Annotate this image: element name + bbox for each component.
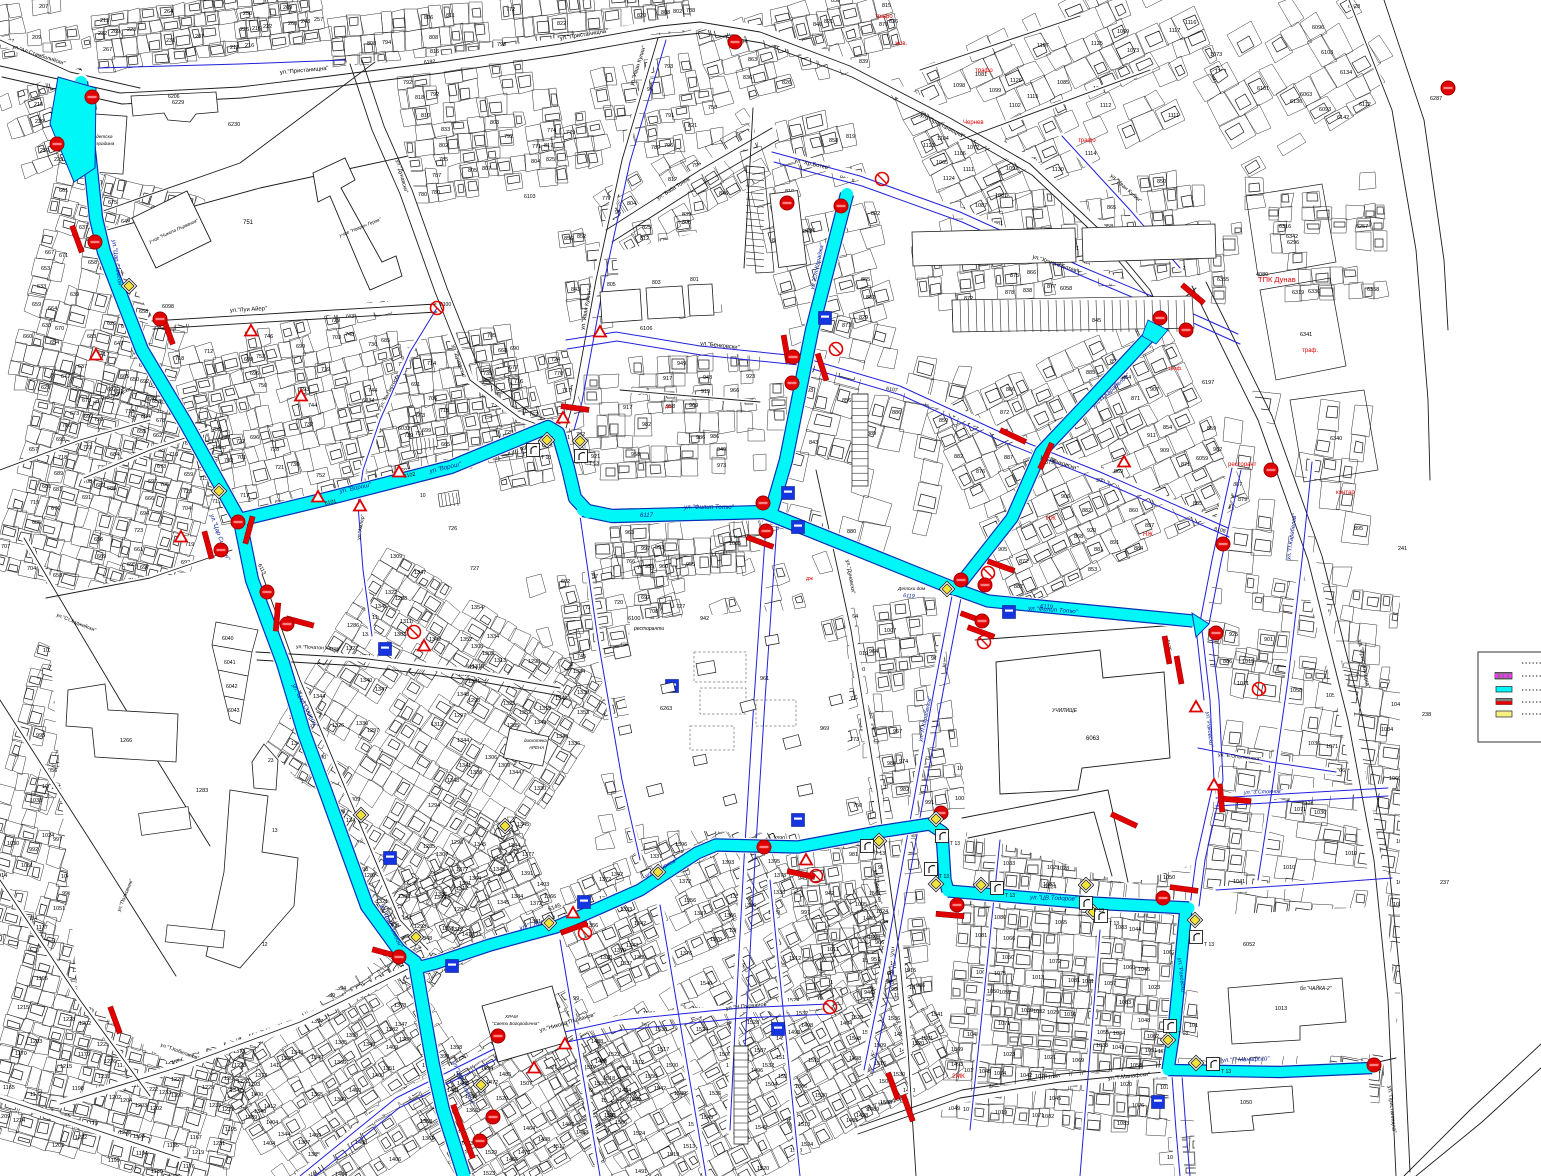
svg-text:1512: 1512	[632, 1060, 644, 1066]
svg-text:992: 992	[29, 847, 38, 853]
svg-text:774: 774	[547, 128, 556, 134]
svg-text:838: 838	[1023, 288, 1032, 294]
svg-text:796: 796	[806, 228, 815, 234]
svg-text:1165: 1165	[3, 1085, 15, 1091]
svg-text:825: 825	[546, 157, 555, 163]
svg-text:1007: 1007	[884, 628, 896, 634]
svg-text:1506: 1506	[795, 1084, 807, 1090]
svg-text:685: 685	[32, 520, 41, 526]
svg-text:901: 901	[1264, 637, 1273, 643]
svg-text:982: 982	[642, 422, 651, 428]
svg-text:1011: 1011	[827, 947, 839, 953]
svg-text:723: 723	[134, 528, 143, 534]
svg-text:1104: 1104	[937, 136, 949, 142]
svg-text:1071: 1071	[998, 1021, 1010, 1027]
svg-text:766: 766	[626, 559, 635, 565]
svg-text:1039: 1039	[1021, 1008, 1033, 1014]
svg-text:1393: 1393	[722, 860, 734, 866]
svg-text:940: 940	[717, 447, 726, 453]
svg-text:887: 887	[1014, 584, 1023, 590]
svg-text:6342: 6342	[1286, 234, 1298, 240]
svg-text:1050: 1050	[987, 989, 999, 995]
svg-text:1370: 1370	[614, 948, 626, 954]
svg-text:1005: 1005	[855, 902, 867, 908]
svg-text:градина: градина	[96, 141, 115, 147]
svg-text:222: 222	[263, 24, 272, 30]
svg-text:1016: 1016	[1064, 1012, 1076, 1018]
svg-text:детска: детска	[96, 134, 113, 140]
svg-text:885: 885	[1086, 370, 1095, 376]
svg-text:1395: 1395	[768, 859, 780, 865]
svg-text:853: 853	[1088, 567, 1097, 573]
svg-text:1041: 1041	[1233, 879, 1245, 885]
svg-text:6296: 6296	[1287, 240, 1299, 246]
svg-text:637: 637	[79, 225, 88, 231]
svg-text:872: 872	[1000, 410, 1009, 416]
svg-text:1083: 1083	[1117, 1121, 1129, 1127]
svg-text:673: 673	[157, 464, 166, 470]
svg-text:895: 895	[1354, 526, 1363, 532]
svg-text:трафо: трафо	[875, 14, 893, 20]
svg-text:6124: 6124	[1044, 884, 1057, 890]
svg-text:6042: 6042	[226, 684, 238, 690]
svg-text:969: 969	[820, 726, 829, 732]
svg-text:6341: 6341	[1300, 332, 1312, 338]
svg-text:726: 726	[448, 526, 457, 532]
svg-text:942: 942	[825, 891, 834, 897]
svg-text:1347: 1347	[395, 1022, 407, 1028]
svg-text:1114: 1114	[1085, 151, 1096, 157]
svg-text:1518: 1518	[603, 1076, 615, 1082]
svg-text:681: 681	[42, 484, 51, 490]
svg-text:1409: 1409	[309, 1133, 321, 1139]
svg-text:715: 715	[212, 445, 221, 451]
svg-text:Т 13: Т 13	[1094, 908, 1104, 914]
svg-text:1198: 1198	[72, 1086, 84, 1092]
svg-text:816: 816	[430, 49, 439, 55]
svg-text:1493: 1493	[951, 1062, 963, 1068]
svg-text:1498: 1498	[801, 1023, 813, 1029]
svg-text:1344: 1344	[509, 770, 521, 776]
svg-text:690: 690	[510, 346, 519, 352]
svg-text:1045: 1045	[1138, 967, 1150, 973]
svg-text:919: 919	[701, 389, 710, 395]
svg-text:1404: 1404	[266, 1120, 278, 1126]
svg-text:846: 846	[719, 191, 728, 197]
svg-text:811: 811	[446, 13, 455, 19]
svg-text:6142: 6142	[1337, 115, 1349, 121]
svg-text:216: 216	[245, 43, 254, 49]
svg-text:667: 667	[45, 250, 54, 256]
svg-text:633: 633	[37, 284, 46, 290]
svg-text:744: 744	[368, 388, 377, 394]
svg-text:684: 684	[110, 452, 119, 458]
svg-text:1549: 1549	[755, 1125, 767, 1131]
svg-text:1336: 1336	[568, 741, 580, 747]
svg-text:1372: 1372	[599, 877, 611, 883]
svg-text:1484: 1484	[619, 1088, 631, 1094]
svg-text:860: 860	[1129, 508, 1138, 514]
svg-text:1516: 1516	[874, 1061, 886, 1067]
svg-text:1071: 1071	[1326, 744, 1338, 750]
svg-text:882: 882	[866, 295, 875, 301]
svg-text:639: 639	[70, 292, 79, 298]
svg-text:216: 216	[252, 26, 261, 32]
svg-text:718: 718	[175, 356, 184, 362]
svg-text:1498: 1498	[856, 1113, 868, 1119]
svg-text:1334: 1334	[573, 669, 585, 675]
svg-text:1176: 1176	[183, 1164, 195, 1170]
svg-text:626: 626	[107, 321, 116, 327]
svg-text:6316: 6316	[1279, 224, 1291, 230]
svg-text:1412: 1412	[264, 1104, 276, 1110]
svg-text:1283: 1283	[196, 788, 208, 794]
svg-text:1522: 1522	[608, 1052, 620, 1058]
svg-text:997: 997	[53, 837, 62, 843]
svg-text:1490: 1490	[863, 916, 875, 922]
svg-text:1298: 1298	[528, 659, 540, 665]
svg-text:1483: 1483	[576, 1130, 588, 1136]
svg-text:Т 13: Т 13	[589, 461, 599, 467]
svg-text:751: 751	[243, 220, 254, 226]
svg-text:752: 752	[256, 354, 265, 360]
svg-text:803: 803	[490, 120, 499, 126]
svg-text:1498: 1498	[538, 1137, 550, 1143]
svg-text:785: 785	[439, 157, 448, 163]
svg-text:1107: 1107	[1037, 43, 1049, 49]
svg-text:871: 871	[1181, 462, 1190, 468]
svg-text:1408: 1408	[355, 1140, 367, 1146]
svg-text:1342: 1342	[429, 637, 441, 643]
svg-text:1020: 1020	[1120, 1082, 1132, 1088]
svg-text:6093: 6093	[1319, 107, 1331, 113]
svg-text:691: 691	[82, 495, 91, 501]
svg-text:745: 745	[577, 654, 586, 660]
svg-text:958: 958	[631, 452, 640, 458]
svg-text:821: 821	[688, 123, 697, 129]
svg-text:1224: 1224	[13, 1118, 25, 1124]
svg-text:1081: 1081	[975, 933, 987, 939]
svg-text:748: 748	[345, 332, 354, 338]
svg-text:1384: 1384	[511, 894, 523, 900]
svg-text:833: 833	[441, 127, 450, 133]
svg-text:1309: 1309	[390, 554, 402, 560]
svg-text:1336: 1336	[744, 903, 756, 909]
svg-text:1344: 1344	[457, 738, 469, 744]
svg-text:1365: 1365	[311, 1092, 323, 1098]
svg-text:807: 807	[482, 166, 491, 172]
svg-text:1330: 1330	[534, 786, 546, 792]
svg-text:909: 909	[1160, 448, 1169, 454]
svg-text:685: 685	[381, 338, 390, 344]
svg-text:723: 723	[183, 489, 192, 495]
svg-text:803: 803	[652, 280, 661, 286]
svg-text:1229: 1229	[202, 1085, 214, 1091]
svg-text:229: 229	[54, 157, 63, 163]
svg-text:868: 868	[1074, 534, 1083, 540]
svg-text:1050: 1050	[1002, 955, 1014, 961]
svg-text:1190: 1190	[171, 1093, 183, 1099]
svg-text:1125: 1125	[1091, 41, 1103, 47]
svg-text:1386: 1386	[435, 892, 447, 898]
svg-text:788: 788	[686, 8, 695, 14]
svg-text:673: 673	[82, 398, 91, 404]
svg-text:1352: 1352	[519, 710, 531, 716]
svg-text:806: 806	[424, 15, 433, 21]
svg-text:6126: 6126	[1302, 801, 1314, 807]
svg-text:792: 792	[430, 92, 439, 98]
svg-text:1065: 1065	[1055, 920, 1067, 926]
svg-text:6136: 6136	[1290, 99, 1302, 105]
svg-text:1081: 1081	[1068, 978, 1080, 984]
svg-text:845: 845	[1092, 318, 1101, 324]
svg-text:1523: 1523	[483, 1171, 495, 1176]
svg-text:730: 730	[290, 462, 299, 468]
svg-text:1366: 1366	[334, 1060, 346, 1066]
svg-text:703: 703	[332, 335, 341, 341]
svg-text:1194: 1194	[136, 1151, 148, 1157]
svg-text:6263: 6263	[660, 706, 672, 712]
svg-text:804: 804	[531, 159, 540, 165]
svg-text:1326: 1326	[332, 723, 344, 729]
svg-text:1195: 1195	[225, 1127, 237, 1133]
svg-text:1315: 1315	[539, 706, 551, 712]
svg-text:215: 215	[34, 102, 43, 108]
svg-text:878: 878	[1005, 290, 1014, 296]
svg-text:1055: 1055	[1097, 1030, 1109, 1036]
svg-text:1098: 1098	[953, 83, 965, 89]
svg-text:1333: 1333	[620, 907, 632, 913]
svg-text:1342: 1342	[634, 921, 646, 927]
svg-text:720: 720	[614, 600, 623, 606]
svg-text:727: 727	[676, 604, 685, 610]
svg-text:250: 250	[243, 11, 252, 17]
svg-text:6100: 6100	[628, 616, 640, 622]
svg-text:825: 825	[617, 0, 626, 1]
svg-text:1023: 1023	[1003, 1052, 1015, 1058]
svg-text:1340: 1340	[360, 678, 372, 684]
svg-text:1049: 1049	[948, 1106, 960, 1112]
svg-text:1106: 1106	[954, 151, 966, 157]
svg-text:681: 681	[53, 487, 62, 493]
svg-text:1404: 1404	[263, 1141, 275, 1147]
svg-text:1177: 1177	[36, 925, 48, 931]
svg-text:1345: 1345	[375, 604, 387, 610]
svg-text:659: 659	[184, 472, 193, 478]
svg-text:719: 719	[321, 367, 330, 373]
svg-text:810: 810	[421, 113, 430, 119]
svg-text:902: 902	[1213, 447, 1222, 453]
svg-text:787: 787	[432, 173, 441, 179]
svg-text:822: 822	[557, 21, 566, 27]
svg-text:689: 689	[54, 471, 63, 477]
svg-text:843: 843	[571, 287, 580, 293]
svg-text:1507: 1507	[754, 1048, 766, 1054]
svg-text:1372: 1372	[679, 879, 691, 885]
svg-text:1071: 1071	[1294, 807, 1306, 813]
svg-text:957: 957	[871, 957, 880, 963]
svg-text:1185: 1185	[167, 1143, 179, 1149]
svg-text:654: 654	[50, 340, 59, 346]
svg-text:1356: 1356	[684, 898, 696, 904]
svg-text:793: 793	[664, 64, 673, 70]
svg-text:1215: 1215	[17, 1005, 29, 1011]
svg-text:1313: 1313	[494, 658, 506, 664]
svg-text:1215: 1215	[60, 1064, 72, 1070]
svg-text:269: 269	[283, 5, 292, 11]
svg-text:854: 854	[1163, 425, 1172, 431]
svg-text:981: 981	[849, 852, 858, 858]
svg-text:713: 713	[125, 409, 134, 415]
svg-text:1532: 1532	[762, 1063, 774, 1069]
svg-text:686: 686	[107, 486, 116, 492]
svg-text:1532: 1532	[796, 1011, 808, 1017]
svg-text:637: 637	[78, 364, 87, 370]
svg-text:647: 647	[114, 341, 123, 347]
svg-text:231: 231	[166, 38, 175, 44]
svg-text:1170: 1170	[78, 1052, 90, 1058]
svg-text:209: 209	[32, 35, 41, 41]
svg-text:692: 692	[140, 379, 149, 385]
svg-text:1288: 1288	[395, 596, 407, 602]
svg-text:966: 966	[875, 940, 884, 946]
svg-text:267: 267	[103, 47, 112, 53]
svg-text:1286: 1286	[347, 623, 359, 629]
svg-text:1226: 1226	[104, 1059, 116, 1065]
svg-text:1075: 1075	[994, 971, 1006, 977]
svg-text:859: 859	[939, 418, 948, 424]
svg-text:1536: 1536	[709, 1091, 721, 1097]
svg-text:1073: 1073	[1210, 52, 1222, 58]
svg-text:1358: 1358	[442, 926, 454, 932]
svg-text:885: 885	[1193, 501, 1202, 507]
svg-text:1231: 1231	[213, 1141, 225, 1147]
svg-text:1032: 1032	[1033, 1009, 1045, 1015]
svg-text:6119: 6119	[903, 593, 915, 600]
svg-text:850: 850	[1157, 179, 1166, 185]
svg-text:6058: 6058	[1060, 286, 1072, 292]
svg-text:1202: 1202	[150, 1106, 162, 1112]
svg-text:1531: 1531	[921, 1036, 933, 1042]
svg-text:973: 973	[717, 463, 726, 469]
svg-text:1081: 1081	[1082, 979, 1094, 985]
svg-text:699: 699	[244, 357, 253, 363]
svg-text:633: 633	[42, 323, 51, 329]
svg-text:925: 925	[1229, 632, 1238, 638]
svg-text:920: 920	[1087, 528, 1096, 534]
svg-text:1396: 1396	[675, 842, 687, 848]
svg-text:1062: 1062	[1147, 1034, 1159, 1040]
svg-text:819: 819	[846, 134, 855, 140]
svg-text:6103: 6103	[1321, 50, 1333, 56]
svg-text:794: 794	[382, 40, 391, 46]
svg-text:АРЕНА: АРЕНА	[528, 745, 544, 750]
svg-text:1346: 1346	[556, 734, 568, 740]
svg-text:1030: 1030	[7, 841, 19, 847]
svg-text:706: 706	[62, 423, 71, 429]
svg-text:1296: 1296	[451, 840, 463, 846]
svg-text:1336: 1336	[470, 770, 482, 776]
svg-text:1225: 1225	[97, 1042, 109, 1048]
svg-text:808: 808	[661, 10, 670, 16]
svg-text:траф.: траф.	[1168, 366, 1183, 372]
svg-text:1498: 1498	[788, 1030, 800, 1036]
svg-text:657: 657	[29, 447, 38, 453]
svg-text:1010: 1010	[1283, 865, 1295, 871]
svg-text:789: 789	[651, 145, 660, 151]
svg-text:1219: 1219	[192, 1150, 204, 1156]
svg-text:770: 770	[554, 371, 563, 377]
svg-text:6043: 6043	[228, 708, 240, 714]
svg-text:1199: 1199	[108, 1158, 120, 1164]
svg-text:1297: 1297	[367, 728, 379, 734]
svg-text:1072: 1072	[967, 145, 979, 151]
svg-text:802: 802	[439, 143, 448, 149]
svg-text:744: 744	[308, 403, 317, 409]
svg-text:трафо: трафо	[1078, 138, 1096, 144]
svg-text:656: 656	[94, 537, 103, 543]
svg-text:1312: 1312	[431, 722, 443, 728]
svg-text:719: 719	[185, 542, 194, 548]
svg-text:705: 705	[487, 333, 496, 339]
svg-text:дж: дж	[806, 576, 813, 582]
svg-text:780: 780	[431, 190, 440, 196]
svg-text:1504: 1504	[765, 1082, 777, 1088]
svg-text:1111: 1111	[963, 167, 974, 173]
svg-text:1376: 1376	[680, 951, 692, 957]
svg-text:1112: 1112	[1100, 103, 1111, 109]
svg-text:863: 863	[748, 57, 757, 63]
svg-text:1378: 1378	[394, 1003, 406, 1009]
svg-text:1347: 1347	[414, 570, 426, 576]
svg-text:1517: 1517	[584, 1065, 596, 1071]
svg-text:875: 875	[1010, 273, 1019, 279]
svg-text:839: 839	[682, 212, 691, 218]
svg-text:1360: 1360	[334, 1097, 346, 1103]
svg-text:6101: 6101	[1257, 86, 1269, 92]
svg-text:858: 858	[829, 138, 838, 144]
svg-text:1058: 1058	[1290, 688, 1302, 694]
svg-text:843: 843	[809, 440, 818, 446]
svg-text:1050: 1050	[1240, 1100, 1252, 1106]
svg-text:Т 13: Т 13	[1221, 1069, 1231, 1075]
svg-text:1466: 1466	[506, 1157, 518, 1163]
svg-text:750: 750	[853, 803, 862, 809]
svg-text:1342: 1342	[555, 696, 567, 702]
svg-text:717: 717	[240, 493, 249, 499]
svg-text:10: 10	[420, 493, 426, 499]
svg-text:886: 886	[892, 410, 901, 416]
svg-text:1548: 1548	[849, 1036, 861, 1042]
svg-text:692: 692	[84, 414, 93, 420]
svg-text:653: 653	[152, 399, 161, 405]
svg-text:Чернев: Чернев	[963, 120, 984, 126]
svg-text:1347: 1347	[375, 687, 387, 693]
svg-text:259: 259	[40, 148, 49, 154]
svg-text:6319: 6319	[1292, 290, 1304, 296]
svg-text:1092: 1092	[1006, 166, 1018, 172]
svg-text:808: 808	[429, 35, 438, 41]
svg-text:995: 995	[36, 733, 45, 739]
svg-text:6192: 6192	[424, 59, 436, 66]
svg-text:1398: 1398	[346, 1033, 358, 1039]
svg-text:822: 822	[871, 211, 880, 217]
svg-text:718: 718	[58, 455, 67, 461]
svg-text:1512: 1512	[789, 956, 801, 962]
svg-text:1411: 1411	[270, 1063, 282, 1069]
svg-text:969: 969	[689, 403, 698, 409]
svg-text:1485: 1485	[629, 1097, 641, 1103]
